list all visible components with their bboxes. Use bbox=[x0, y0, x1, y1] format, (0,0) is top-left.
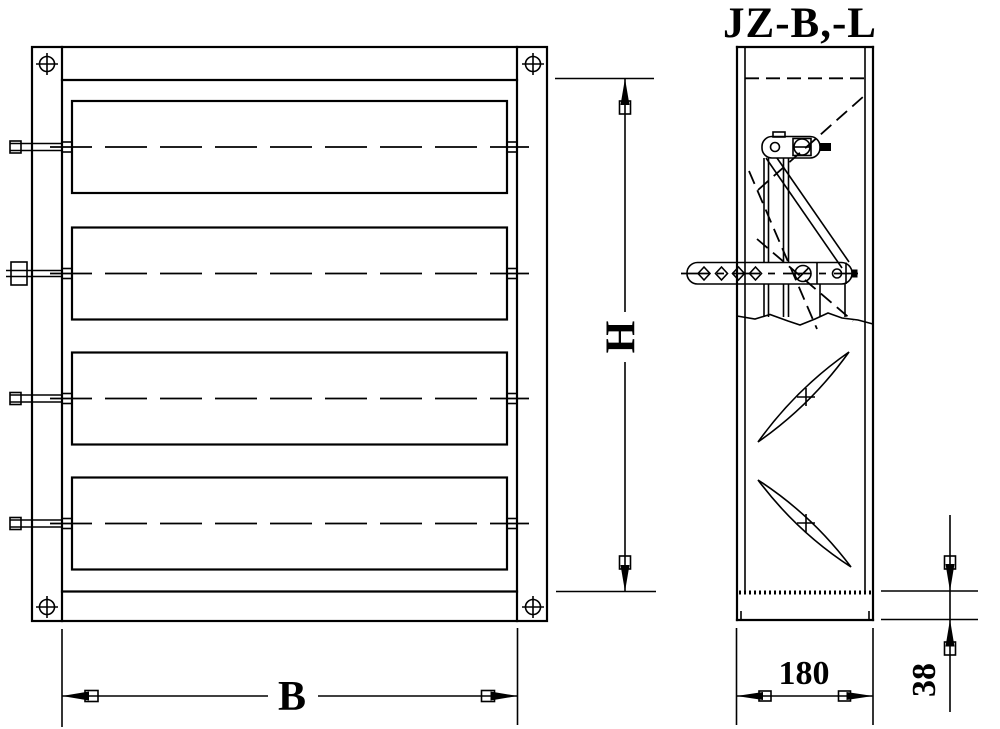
height-dimension-label: H bbox=[599, 321, 645, 354]
dimension-B: B bbox=[62, 628, 518, 727]
arrowhead-down bbox=[946, 564, 955, 591]
depth-dimension-label: 180 bbox=[779, 655, 830, 692]
blade-profile-2 bbox=[758, 480, 851, 567]
dimension-180: 180 bbox=[737, 628, 874, 725]
bottom-flange bbox=[737, 593, 873, 621]
blade-shaft-left bbox=[10, 518, 72, 530]
dimension-38: 38 bbox=[881, 515, 978, 712]
blade-shaft-left bbox=[10, 141, 72, 153]
linkage-rod bbox=[766, 158, 849, 268]
blade-center-mark bbox=[797, 388, 815, 406]
frame-outline bbox=[32, 47, 547, 621]
frame-dimension-label: 38 bbox=[906, 663, 943, 697]
damper-frame bbox=[32, 47, 547, 621]
blade-shaft-left bbox=[10, 393, 72, 405]
break-line bbox=[737, 313, 873, 325]
linkage-travel-dashed-lines bbox=[749, 96, 864, 329]
blade-center-mark bbox=[797, 514, 815, 532]
blade-panel-1 bbox=[10, 101, 529, 193]
screw-icon bbox=[522, 53, 544, 75]
width-dimension-label: B bbox=[278, 674, 306, 720]
upper-crank bbox=[762, 132, 831, 158]
damper-technical-drawing: H B 180 38 JZ-B,-L bbox=[0, 0, 1000, 729]
dimension-H: H bbox=[555, 79, 656, 592]
corner-screws bbox=[36, 53, 544, 618]
pivot-hole bbox=[771, 143, 780, 152]
blade-panel-3 bbox=[10, 353, 529, 445]
shaft-stub bbox=[852, 270, 858, 278]
blade-profile-1 bbox=[758, 352, 849, 442]
side-view bbox=[681, 47, 873, 620]
shaft-stub bbox=[820, 143, 831, 151]
control-handle bbox=[681, 263, 858, 285]
drawing-title: JZ-B,-L bbox=[723, 0, 877, 47]
drive-nut bbox=[11, 262, 27, 285]
screw-icon bbox=[36, 596, 58, 618]
duct-walls bbox=[737, 47, 873, 620]
blade-panel-4 bbox=[10, 478, 529, 570]
screw-icon bbox=[522, 596, 544, 618]
screw-icon bbox=[36, 53, 58, 75]
front-view bbox=[6, 47, 547, 621]
blade-panel-2 bbox=[6, 228, 529, 320]
